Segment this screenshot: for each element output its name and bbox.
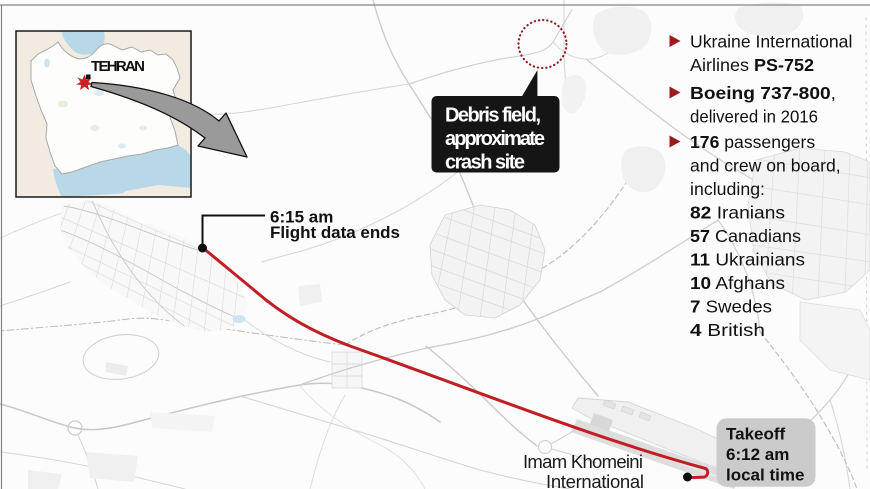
- svg-text:Ukraine International: Ukraine International: [690, 32, 852, 52]
- svg-text:176 passengers: 176 passengers: [690, 132, 815, 152]
- svg-text:TEHRAN: TEHRAN: [91, 58, 145, 75]
- svg-text:7 Swedes: 7 Swedes: [690, 297, 772, 317]
- svg-text:6:12 am: 6:12 am: [726, 445, 789, 464]
- svg-text:local time: local time: [726, 466, 804, 485]
- svg-text:Takeoff: Takeoff: [726, 424, 786, 443]
- svg-text:delivered in 2016: delivered in 2016: [690, 107, 818, 127]
- svg-text:Boeing 737-800,: Boeing 737-800,: [690, 83, 836, 103]
- svg-text:Flight data ends: Flight data ends: [270, 223, 400, 242]
- svg-text:and crew on board,: and crew on board,: [690, 156, 841, 176]
- svg-text:Debris field,: Debris field,: [445, 104, 541, 126]
- svg-text:4 British: 4 British: [690, 320, 765, 340]
- svg-text:crash site: crash site: [445, 152, 525, 174]
- svg-text:11 Ukrainians: 11 Ukrainians: [690, 250, 805, 270]
- svg-text:Airlines PS-752: Airlines PS-752: [690, 55, 814, 75]
- svg-text:57 Canadians: 57 Canadians: [690, 226, 801, 246]
- svg-text:International: International: [546, 471, 644, 489]
- svg-text:approximate: approximate: [445, 128, 545, 150]
- svg-text:82 Iranians: 82 Iranians: [690, 203, 785, 223]
- svg-text:including:: including:: [690, 179, 765, 199]
- svg-text:Imam Khomeini: Imam Khomeini: [523, 451, 643, 472]
- svg-text:10 Afghans: 10 Afghans: [690, 273, 785, 293]
